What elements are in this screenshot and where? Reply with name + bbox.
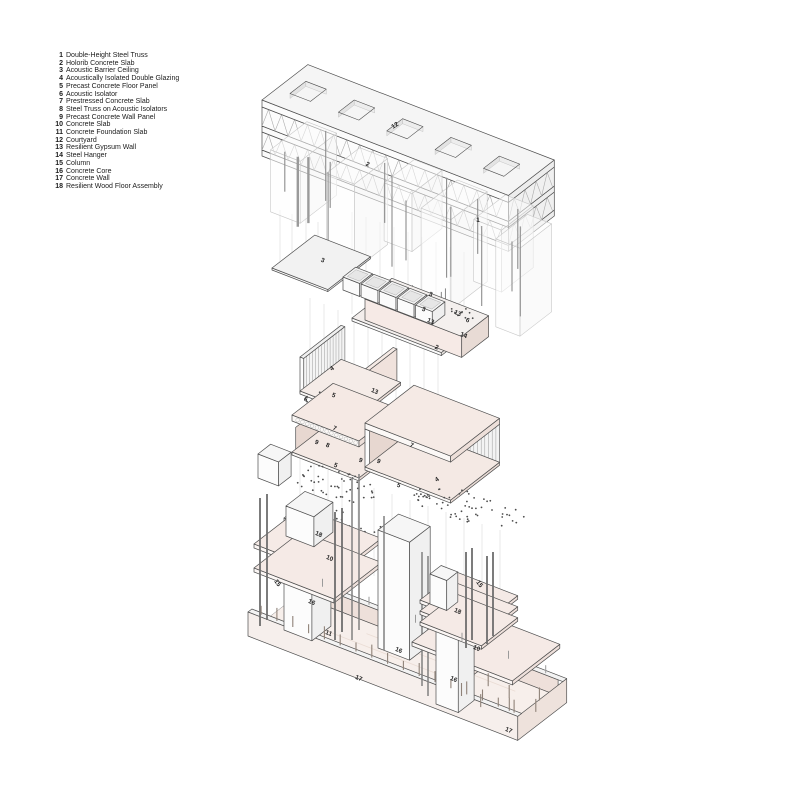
exploded-axonometric-diagram: 1221331331361424135679859795418101516111… [0, 0, 800, 800]
diagram-callout: 17 [354, 674, 364, 683]
diagram-callout: 5 [396, 482, 402, 490]
diagram-callout: 1 [476, 217, 480, 224]
page: 1Double-Height Steel Truss2Holorib Concr… [0, 0, 800, 800]
